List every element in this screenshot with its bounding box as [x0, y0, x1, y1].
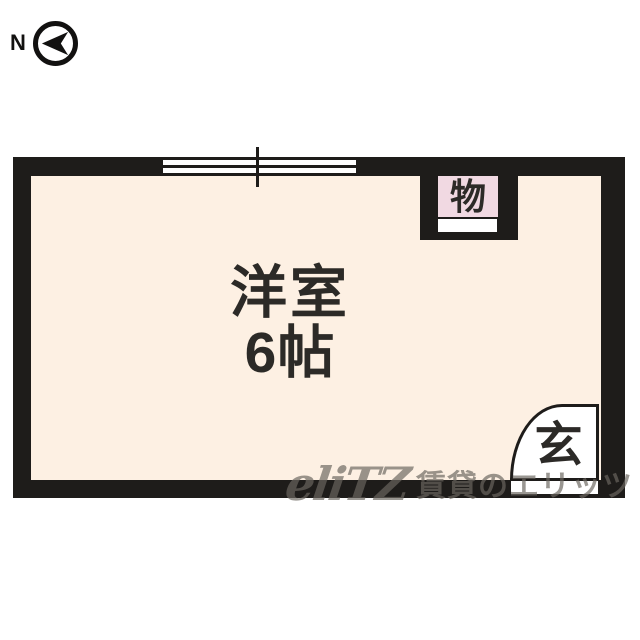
compass-circle — [33, 21, 78, 66]
floor-plan: 物 洋室 6帖 玄 — [13, 157, 625, 498]
closet-label-box: 物 — [438, 176, 498, 218]
floorplan-canvas: N 物 洋室 6帖 玄 eliTZ 賃貸のエリッ — [0, 0, 640, 640]
compass-arrow-icon — [39, 27, 72, 60]
room-name: 洋室 — [160, 264, 420, 324]
closet-label: 物 — [450, 179, 486, 215]
window-pane-divider — [163, 165, 356, 168]
window-center-tick — [256, 147, 259, 187]
room-size: 6帖 — [160, 324, 420, 384]
compass: N — [0, 0, 120, 90]
closet: 物 — [420, 157, 518, 240]
room-label: 洋室 6帖 — [160, 264, 420, 384]
closet-sliding-door — [436, 217, 499, 234]
compass-north-label: N — [10, 32, 26, 54]
entrance-label: 玄 — [534, 422, 582, 470]
entrance-opening — [511, 480, 598, 494]
window-symbol — [161, 158, 358, 175]
